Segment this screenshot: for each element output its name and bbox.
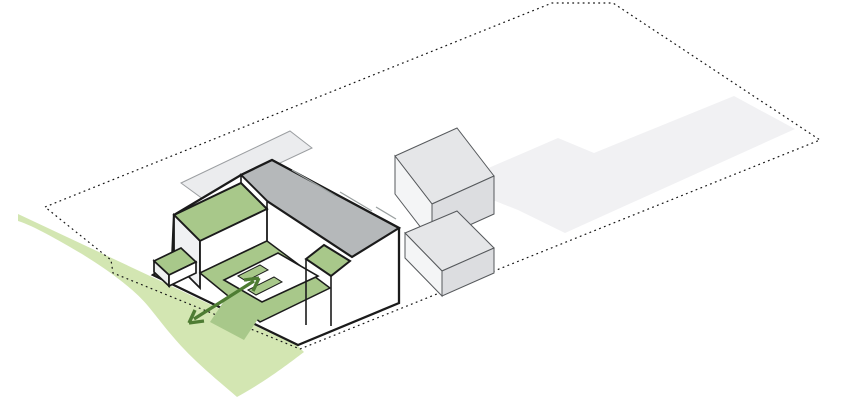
diagram-stage	[0, 0, 853, 400]
diagram-canvas	[0, 0, 853, 400]
ghost-future-footprint	[470, 96, 795, 233]
